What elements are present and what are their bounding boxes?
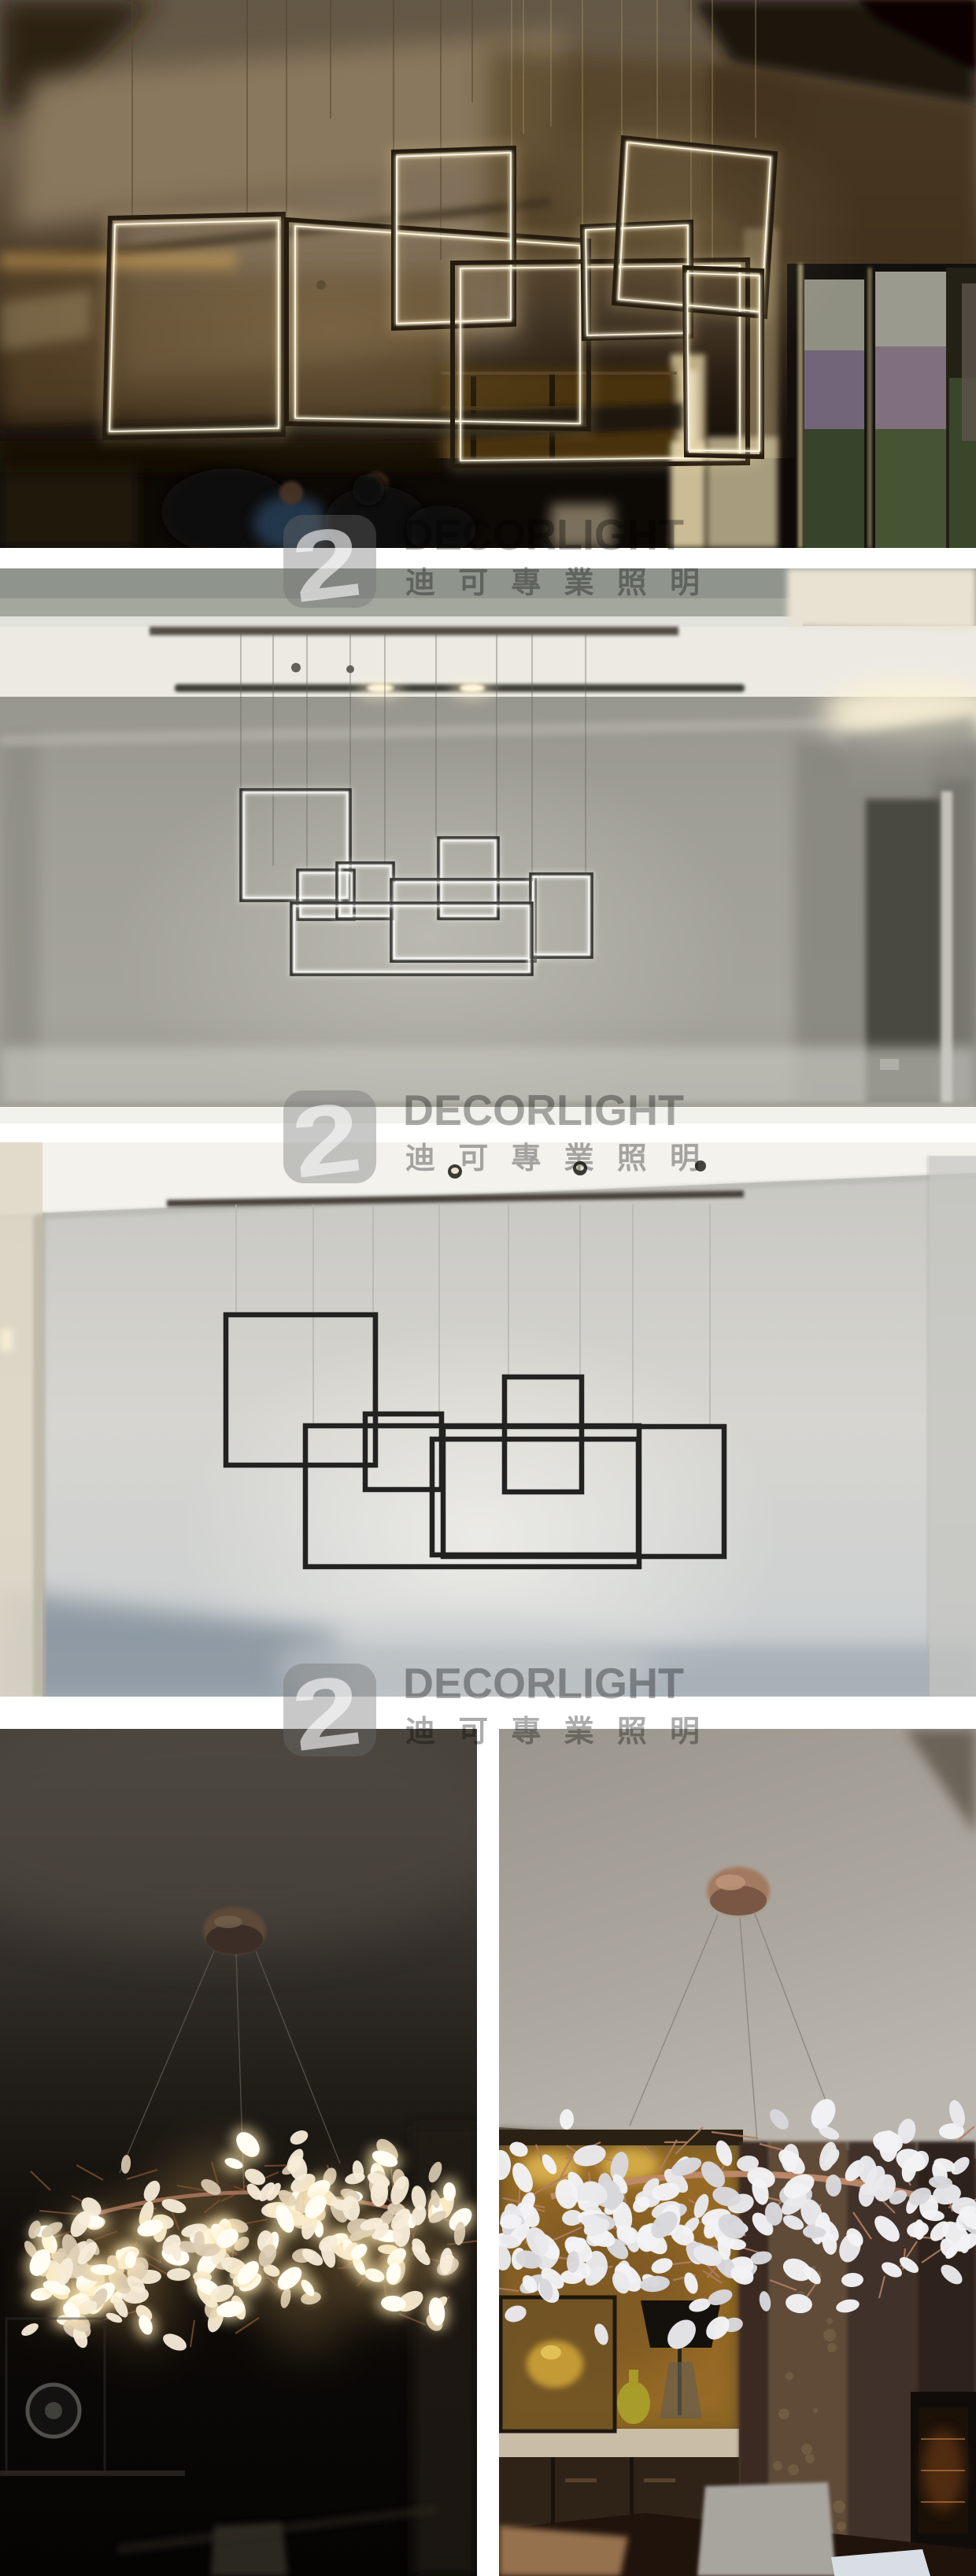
svg-text:DECORLIGHT: DECORLIGHT xyxy=(403,1659,684,1708)
svg-text:2: 2 xyxy=(287,505,367,624)
svg-text:DECORLIGHT: DECORLIGHT xyxy=(403,1086,684,1134)
svg-text:DECORLIGHT: DECORLIGHT xyxy=(403,510,684,559)
svg-text:2: 2 xyxy=(287,1081,367,1199)
svg-text:2: 2 xyxy=(287,1654,367,1772)
